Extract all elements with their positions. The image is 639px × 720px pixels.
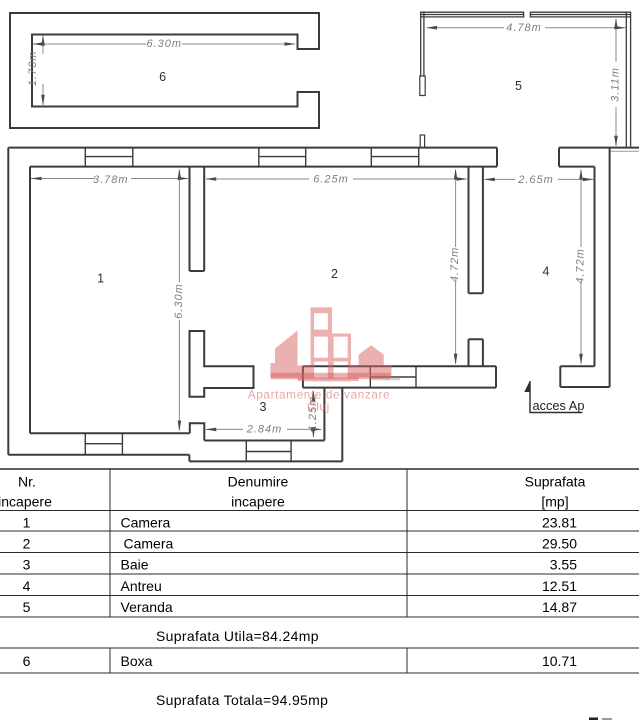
svg-text:2: 2	[331, 267, 338, 281]
svg-text:5: 5	[515, 79, 522, 93]
svg-text:3.78m: 3.78m	[93, 174, 129, 186]
svg-text:10.71: 10.71	[542, 653, 577, 669]
svg-text:14.87: 14.87	[542, 599, 577, 615]
svg-text:Suprafata Utila=84.24mp: Suprafata Utila=84.24mp	[156, 628, 319, 644]
svg-text:6.30m: 6.30m	[147, 38, 183, 50]
svg-text:2.65m: 2.65m	[517, 174, 554, 186]
svg-text:Camera: Camera	[121, 515, 171, 531]
svg-text:4.72m: 4.72m	[575, 248, 587, 284]
svg-text:3.11m: 3.11m	[609, 67, 621, 102]
svg-text:12.51: 12.51	[542, 578, 577, 594]
svg-text:Denumire: Denumire	[228, 474, 289, 490]
svg-text:6.25m: 6.25m	[313, 174, 349, 186]
svg-text:3: 3	[260, 400, 267, 414]
svg-text:Veranda: Veranda	[121, 599, 173, 615]
svg-text:Camera: Camera	[124, 536, 174, 552]
svg-text:4.78m: 4.78m	[506, 22, 542, 34]
svg-text:23.81: 23.81	[542, 515, 577, 531]
svg-text:6: 6	[159, 70, 166, 84]
svg-text:incapere: incapere	[231, 494, 285, 510]
svg-text:Suprafata: Suprafata	[525, 474, 586, 490]
svg-text:2: 2	[23, 536, 31, 552]
svg-text:5: 5	[23, 599, 31, 615]
svg-text:4.72m: 4.72m	[449, 247, 461, 283]
svg-text:Boxa: Boxa	[121, 653, 153, 669]
svg-text:acces Ap: acces Ap	[533, 398, 585, 413]
svg-text:4: 4	[543, 265, 550, 279]
svg-text:1: 1	[23, 515, 31, 531]
svg-text:Nr.: Nr.	[18, 474, 36, 490]
svg-text:1: 1	[97, 272, 104, 286]
svg-text:4: 4	[23, 578, 31, 594]
svg-text:3: 3	[23, 557, 31, 573]
svg-text:Antreu: Antreu	[121, 578, 162, 594]
svg-text:Baie: Baie	[121, 557, 149, 573]
svg-text:incapere: incapere	[0, 494, 52, 510]
svg-text:1.70m: 1.70m	[27, 51, 39, 87]
svg-text:3.55: 3.55	[550, 557, 577, 573]
svg-text:6.30m: 6.30m	[173, 283, 185, 319]
svg-text:Suprafata Totala=94.95mp: Suprafata Totala=94.95mp	[156, 692, 328, 708]
svg-text:6: 6	[23, 653, 31, 669]
svg-text:29.50: 29.50	[542, 536, 577, 552]
svg-text:[mp]: [mp]	[541, 494, 568, 510]
svg-text:2.84m: 2.84m	[246, 424, 283, 436]
svg-text:Cluj: Cluj	[307, 400, 330, 414]
